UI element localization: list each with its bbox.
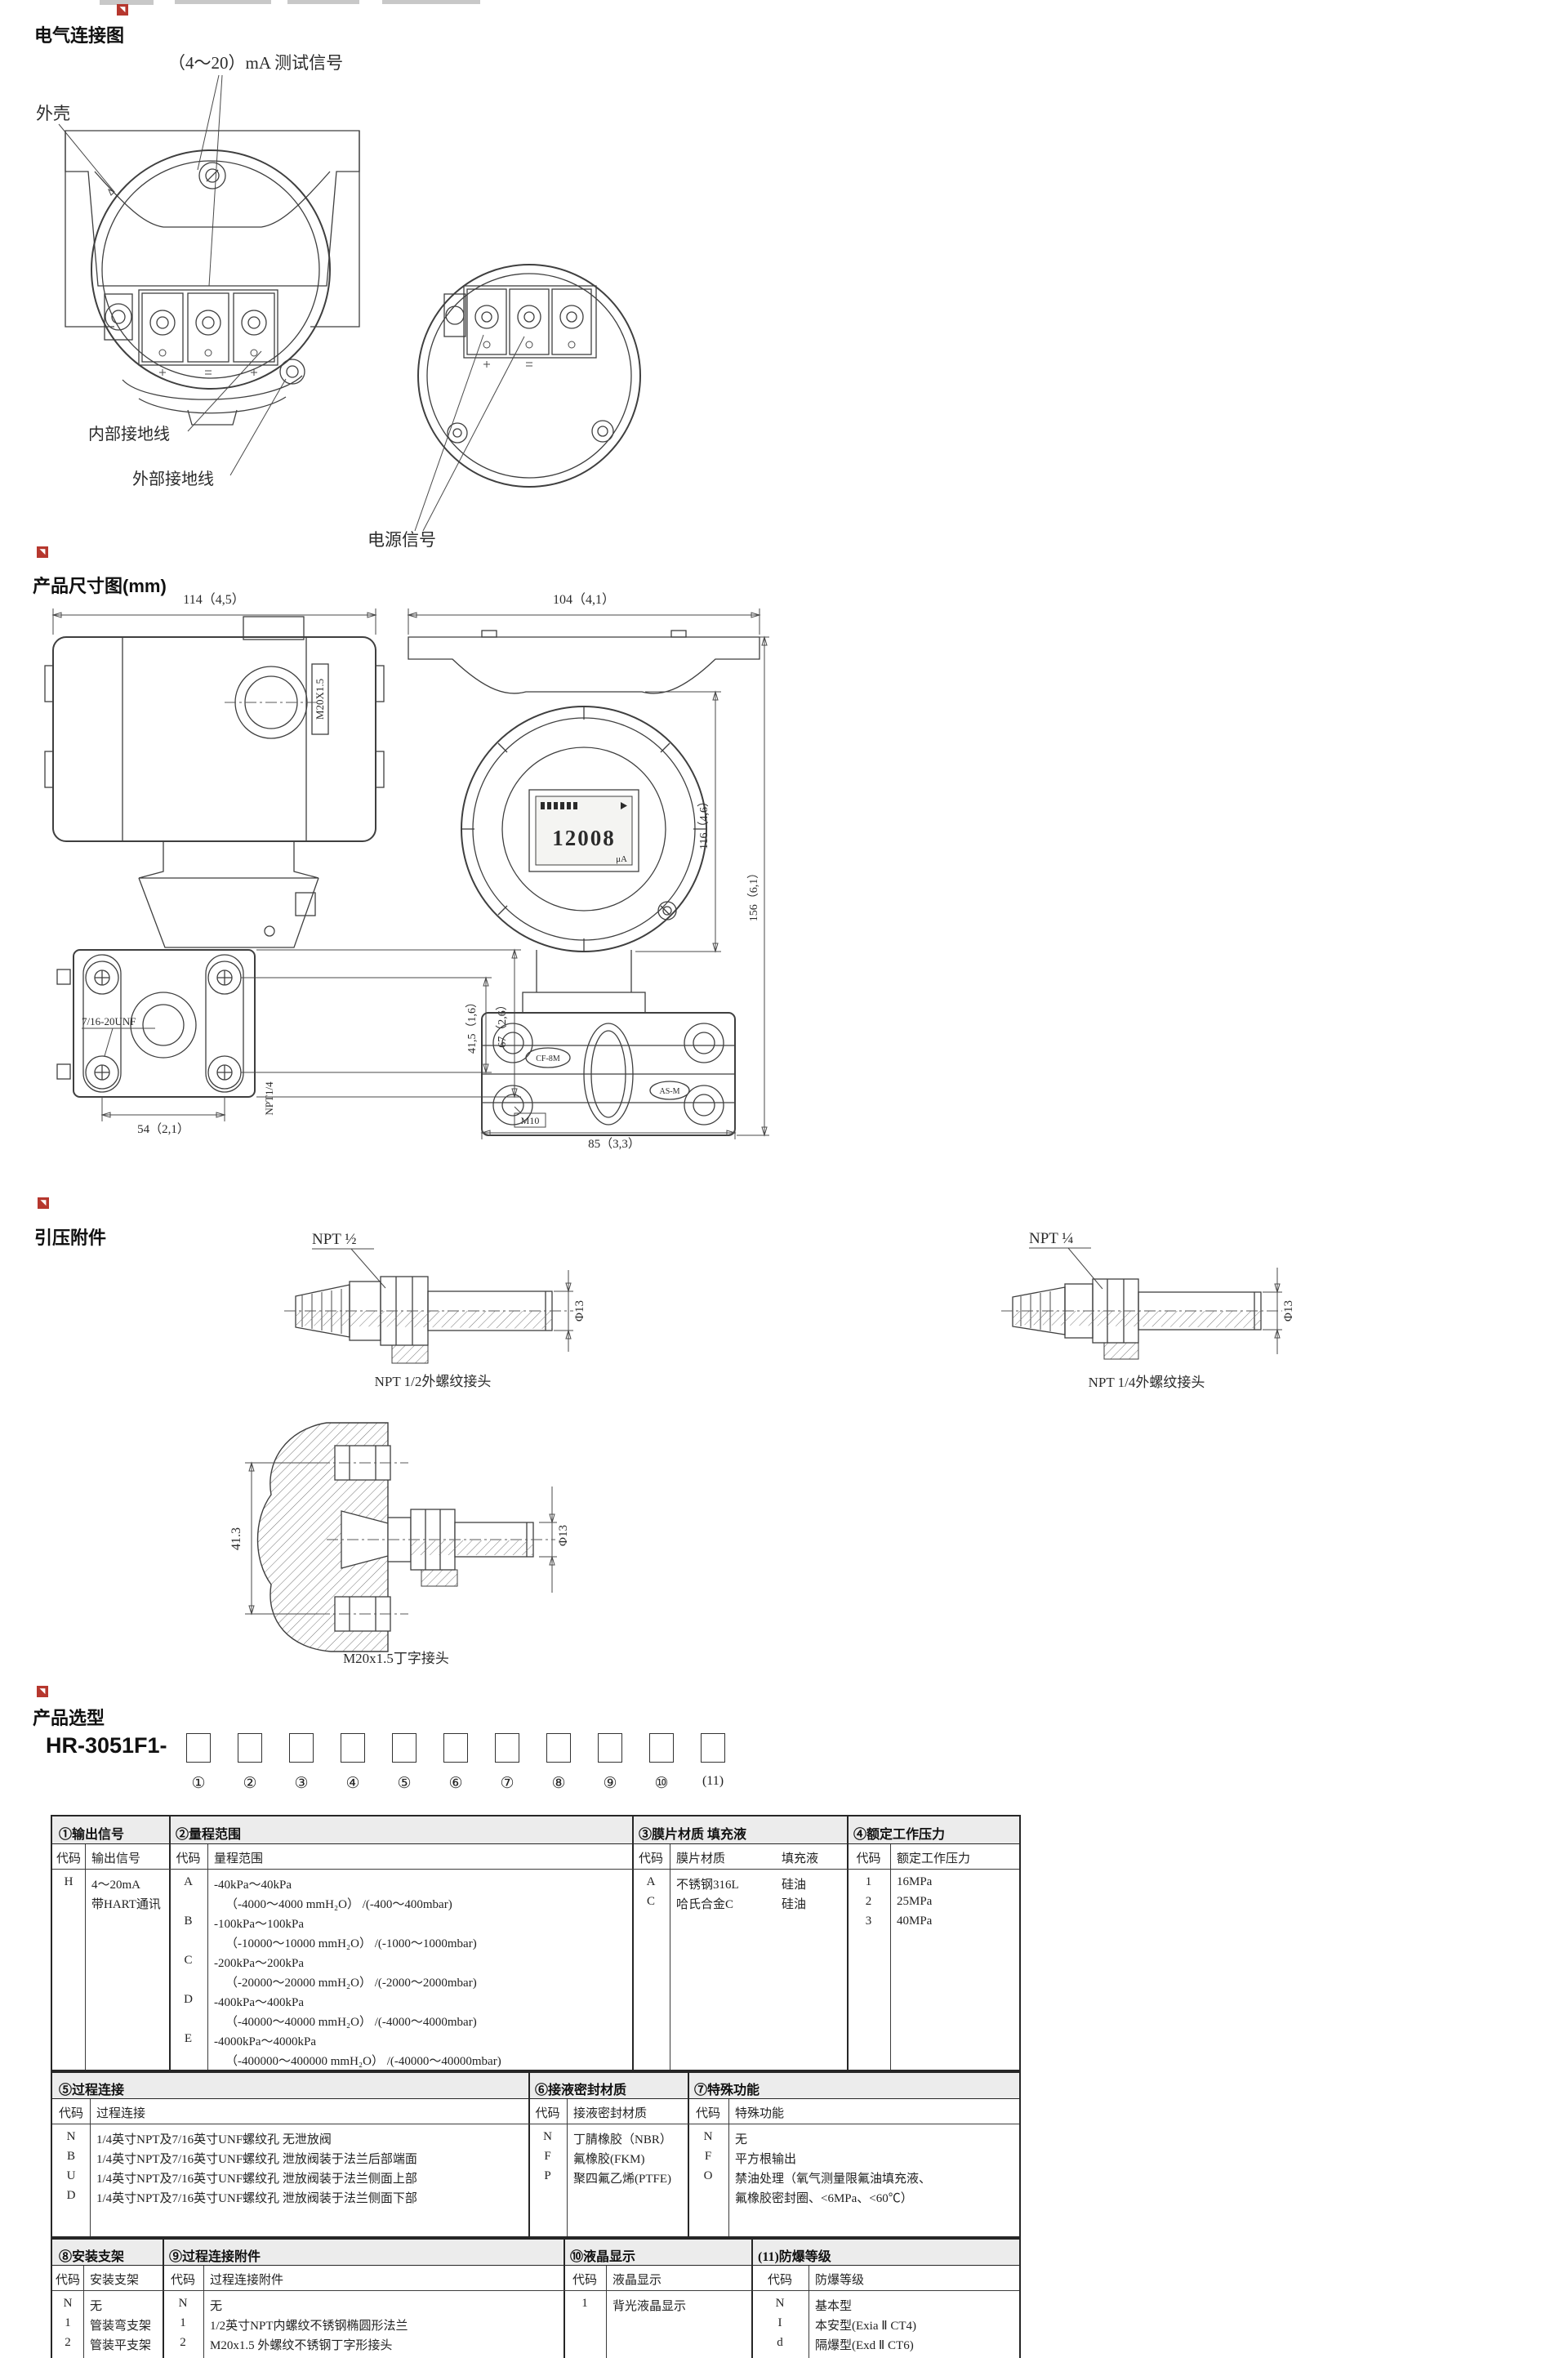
table-row-code: D xyxy=(169,1993,207,2007)
external-ground-label: 外部接地线 xyxy=(132,470,214,488)
fitting-m20-drawing: 41.3 Φ13 M20x1.5丁字接头 xyxy=(220,1413,580,1670)
table-row-value: 硅油 xyxy=(782,1895,806,1912)
table5-title: ⑤过程连接 xyxy=(59,2079,124,2098)
t6-code-header: 代码 xyxy=(528,2104,567,2121)
electrical-connection-diagram: （4～20）mA 测试信号 外壳 xyxy=(16,41,653,580)
test-signal-label: （4～20）mA 测试信号 xyxy=(168,53,343,73)
pos-4: ④ xyxy=(336,1774,369,1793)
fitting-npt14-drawing: NPT ¼ Φ13 NPT 1/4外螺纹接头 xyxy=(983,1209,1318,1405)
fitting-caption: M20x1.5丁字接头 xyxy=(343,1651,449,1666)
table8-title: ⑧安装支架 xyxy=(59,2245,124,2265)
table-row-value: 本安型(Exia Ⅱ CT4) xyxy=(815,2316,916,2333)
section-marker-icon: ◥ xyxy=(38,1197,49,1209)
t4-code-header: 代码 xyxy=(847,1849,890,1866)
table-row-value: （-400000～400000 mmH₂O） /(-40000～40000mba… xyxy=(225,2052,501,2069)
table-row-code: D xyxy=(52,2189,90,2203)
datasheet-page: ◥ 电气连接图 （4～20）mA 测试信号 外壳 xyxy=(0,0,1568,2358)
t1-code-header: 代码 xyxy=(52,1849,85,1866)
selection-table-block2: ⑤过程连接 ⑥接液密封材质 ⑦特殊功能 代码 过程连接 代码 接液密封材质 代码… xyxy=(51,2071,1021,2238)
table-row-code: A xyxy=(169,1875,207,1889)
dim-41-5: 41,5（1,6） xyxy=(465,996,479,1054)
table-row-code: F xyxy=(528,2150,567,2164)
table-row-value: 4～20mA xyxy=(91,1875,140,1892)
terminal-compartment-front xyxy=(65,131,359,425)
t8-col-header: 安装支架 xyxy=(90,2271,139,2288)
table-row-code: O xyxy=(688,2169,728,2183)
table-row-code: N xyxy=(163,2297,203,2311)
table-row-code: F xyxy=(688,2150,728,2164)
table4-title: ④额定工作压力 xyxy=(853,1823,945,1843)
pos-11: (11) xyxy=(697,1774,729,1789)
product-dimension-drawing: 114（4,5） M20X1.5 xyxy=(24,568,776,1149)
t5-col-header: 过程连接 xyxy=(96,2104,145,2121)
table-row-code: H xyxy=(52,1875,85,1889)
table-row-code: 1 xyxy=(163,2316,203,2330)
thread-size-label: NPT ½ xyxy=(312,1231,357,1248)
table-row-code: N xyxy=(688,2130,728,2144)
table-row-code: 1 xyxy=(563,2297,606,2311)
table2-title: ②量程范围 xyxy=(176,1823,241,1843)
table-row-code: d xyxy=(751,2336,808,2350)
t9-code-header: 代码 xyxy=(163,2271,203,2288)
dim-m10: M10 xyxy=(521,1115,540,1126)
table-row-value: 聚四氟乙烯(PTFE) xyxy=(573,2169,671,2186)
table-row-value: 管装弯支架 xyxy=(90,2316,151,2333)
table7-title: ⑦特殊功能 xyxy=(694,2079,759,2098)
table-row-code: B xyxy=(169,1914,207,1928)
table-row-value: 25MPa xyxy=(897,1895,932,1909)
table-row-value: （-10000～10000 mmH₂O） /(-1000～1000mbar) xyxy=(225,1934,477,1951)
table-row-value: 1/2英寸NPT内螺纹不锈钢椭圆形法兰 xyxy=(210,2316,408,2333)
table-row-code: C xyxy=(169,1954,207,1968)
table-row-code: 2 xyxy=(847,1895,890,1909)
dim-114: 114（4,5） xyxy=(183,592,244,607)
table6-title: ⑥接液密封材质 xyxy=(535,2079,626,2098)
table-row-value: 16MPa xyxy=(897,1875,932,1889)
fitting-caption: NPT 1/4外螺纹接头 xyxy=(1089,1375,1205,1390)
section-title-selection: 产品选型 xyxy=(33,1704,105,1730)
t3-col-header: 膜片材质 xyxy=(676,1849,725,1866)
thread-size-label: NPT ¼ xyxy=(1029,1230,1074,1247)
t11-code-header: 代码 xyxy=(751,2271,808,2288)
table-row-value: -200kPa～200kPa xyxy=(214,1954,304,1971)
t10-col-header: 液晶显示 xyxy=(612,2271,661,2288)
fitting-caption: NPT 1/2外螺纹接头 xyxy=(375,1374,492,1389)
table-row-value: 平方根输出 xyxy=(735,2150,796,2167)
table9-title: ⑨过程连接附件 xyxy=(169,2245,261,2265)
table-row-value: -40kPa～40kPa xyxy=(214,1875,292,1892)
t2-code-header: 代码 xyxy=(169,1849,207,1866)
table-row-code: B xyxy=(52,2150,90,2164)
pos-3: ③ xyxy=(285,1774,318,1793)
table-row-value: 不锈钢316L xyxy=(676,1875,739,1892)
model-prefix: HR-3051F1- xyxy=(46,1733,167,1758)
table-row-value: -4000kPa～4000kPa xyxy=(214,2032,316,2049)
t2-col-header: 量程范围 xyxy=(214,1849,263,1866)
t3-col2-header: 填充液 xyxy=(782,1849,818,1866)
dim-npt14-port: NPT1/4 xyxy=(263,1081,275,1116)
table-row-value: 氟橡胶密封圈、<6MPa、<60℃） xyxy=(735,2189,913,2206)
table-row-value: （-4000～4000 mmH₂O） /(-400～400mbar) xyxy=(225,1895,452,1912)
t9-col-header: 过程连接附件 xyxy=(210,2271,283,2288)
table-row-value: 1/4英寸NPT及7/16英寸UNF螺纹孔 泄放阀装于法兰侧面下部 xyxy=(96,2189,417,2206)
block3-header: ⑧安装支架 ⑨过程连接附件 ⑩液晶显示 (11)防爆等级 xyxy=(52,2240,1019,2266)
t1-col-header: 输出信号 xyxy=(91,1849,140,1866)
lcd-value: 12008 xyxy=(552,826,616,850)
table-row-code: I xyxy=(751,2316,808,2330)
t10-code-header: 代码 xyxy=(563,2271,606,2288)
dia-label: Φ13 xyxy=(573,1300,586,1322)
section-marker-icon: ◥ xyxy=(37,546,48,558)
table-row-code: U xyxy=(52,2169,90,2183)
table-row-value: 管装平支架 xyxy=(90,2336,151,2353)
t7-code-header: 代码 xyxy=(688,2104,728,2121)
dim-156: 156（6,1） xyxy=(747,867,760,922)
table-row-value: 哈氏合金C xyxy=(676,1895,733,1912)
t3-code-header: 代码 xyxy=(632,1849,670,1866)
table-row-value: -100kPa～100kPa xyxy=(214,1914,304,1932)
table-row-value: 40MPa xyxy=(897,1914,932,1928)
selection-table-block3: ⑧安装支架 ⑨过程连接附件 ⑩液晶显示 (11)防爆等级 代码 安装支架 代码 … xyxy=(51,2238,1021,2358)
table-row-code: N xyxy=(528,2130,567,2144)
table11-title: (11)防爆等级 xyxy=(758,2245,831,2265)
pos-9: ⑨ xyxy=(594,1774,626,1793)
t4-col-header: 额定工作压力 xyxy=(897,1849,970,1866)
table-row-code: 2 xyxy=(163,2336,203,2350)
table-row-value: 氟橡胶(FKM) xyxy=(573,2150,645,2167)
t5-code-header: 代码 xyxy=(52,2104,90,2121)
table-row-code: A xyxy=(632,1875,670,1889)
table-row-value: 背光液晶显示 xyxy=(612,2297,686,2314)
table-row-value: 1/4英寸NPT及7/16英寸UNF螺纹孔 泄放阀装于法兰侧面上部 xyxy=(96,2169,417,2186)
pos-2: ② xyxy=(234,1774,266,1793)
table-row-value: 无 xyxy=(90,2297,102,2314)
table-row-value: 无 xyxy=(735,2130,747,2147)
dim-unf-thread: 7/16-20UNF xyxy=(82,1015,136,1027)
table-row-code: E xyxy=(169,2032,207,2046)
table3-title: ③膜片材质 填充液 xyxy=(639,1823,746,1843)
table-row-value: （-40000～40000 mmH₂O） /(-4000～4000mbar) xyxy=(225,2013,477,2030)
pos-7: ⑦ xyxy=(491,1774,523,1793)
transmitter-side-view: 114（4,5） M20X1.5 xyxy=(45,592,521,1136)
table-row-value: （-20000～20000 mmH₂O） /(-2000～2000mbar) xyxy=(225,1973,477,1990)
table-row-code: N xyxy=(751,2297,808,2311)
lcd-unit: μA xyxy=(616,854,627,864)
table-row-value: 隔爆型(Exd Ⅱ CT6) xyxy=(815,2336,914,2353)
block1-header: ①输出信号 ②量程范围 ③膜片材质 填充液 ④额定工作压力 xyxy=(52,1816,1019,1844)
dim-116: 116（4,6） xyxy=(697,796,710,849)
table-row-value: -400kPa～400kPa xyxy=(214,1993,304,2010)
table-row-code: 1 xyxy=(847,1875,890,1889)
t7-col-header: 特殊功能 xyxy=(735,2104,784,2121)
dim-54: 54（2,1） xyxy=(137,1122,189,1136)
terminal-compartment-rear xyxy=(418,265,640,487)
t8-code-header: 代码 xyxy=(52,2271,83,2288)
internal-ground-label: 内部接地线 xyxy=(88,425,170,444)
pos-1: ① xyxy=(182,1774,215,1793)
table-row-code: N xyxy=(52,2130,90,2144)
table-row-value: 禁油处理（氧气测量限氟油填充液、 xyxy=(735,2169,931,2186)
power-signal-label: 电源信号 xyxy=(367,530,436,550)
table1-title: ①输出信号 xyxy=(59,1823,124,1843)
fitting-npt12-drawing: NPT ½ Φ13 NPT 1/2外螺纹接头 xyxy=(269,1213,604,1405)
dim-m20x15: M20X1.5 xyxy=(314,679,326,720)
pos-5: ⑤ xyxy=(388,1774,421,1793)
height-dim-label: 41.3 xyxy=(229,1527,243,1550)
table-row-value: M20x1.5 外螺纹不锈钢丁字形接头 xyxy=(210,2336,392,2353)
table-row-value: 1/4英寸NPT及7/16英寸UNF螺纹孔 泄放阀装于法兰后部端面 xyxy=(96,2150,417,2167)
transmitter-front-view: 104（4,1） 12008 xyxy=(408,592,769,1151)
casting-mark-left: CF-8M xyxy=(536,1054,560,1063)
dim-85: 85（3,3） xyxy=(588,1137,640,1151)
block2-header: ⑤过程连接 ⑥接液密封材质 ⑦特殊功能 xyxy=(52,2073,1019,2099)
pos-8: ⑧ xyxy=(542,1774,575,1793)
pos-10: ⑩ xyxy=(645,1774,678,1793)
t6-col-header: 接液密封材质 xyxy=(573,2104,647,2121)
table-row-value: 无 xyxy=(210,2297,222,2314)
table-row-value: 硅油 xyxy=(782,1875,806,1892)
table-row-value: 1/4英寸NPT及7/16英寸UNF螺纹孔 无泄放阀 xyxy=(96,2130,332,2147)
dia-label: Φ13 xyxy=(557,1525,570,1546)
table10-title: ⑩液晶显示 xyxy=(570,2245,635,2265)
table-row-value: 基本型 xyxy=(815,2297,852,2314)
pos-6: ⑥ xyxy=(439,1774,472,1793)
table-row-value: 丁腈橡胶（NBR） xyxy=(573,2130,672,2147)
dia-label: Φ13 xyxy=(1282,1300,1295,1322)
selection-table-block1: ①输出信号 ②量程范围 ③膜片材质 填充液 ④额定工作压力 代码 输出信号 代码… xyxy=(51,1815,1021,2071)
table-row-code: C xyxy=(632,1895,670,1909)
section-marker-icon: ◥ xyxy=(117,4,128,16)
section-marker-icon: ◥ xyxy=(37,1686,48,1697)
casting-mark-right: AS-M xyxy=(659,1087,679,1096)
section-title-fittings: 引压附件 xyxy=(34,1224,106,1250)
table-row-code: 3 xyxy=(847,1914,890,1928)
dim-104: 104（4,1） xyxy=(553,592,615,607)
table-row-code: 1 xyxy=(52,2316,83,2330)
t11-col-header: 防爆等级 xyxy=(815,2271,864,2288)
table-row-code: N xyxy=(52,2297,83,2311)
table-row-code: P xyxy=(528,2169,567,2183)
table-row-code: 2 xyxy=(52,2336,83,2350)
housing-label: 外壳 xyxy=(36,104,70,123)
table-row-value: 带HART通讯 xyxy=(91,1895,161,1912)
